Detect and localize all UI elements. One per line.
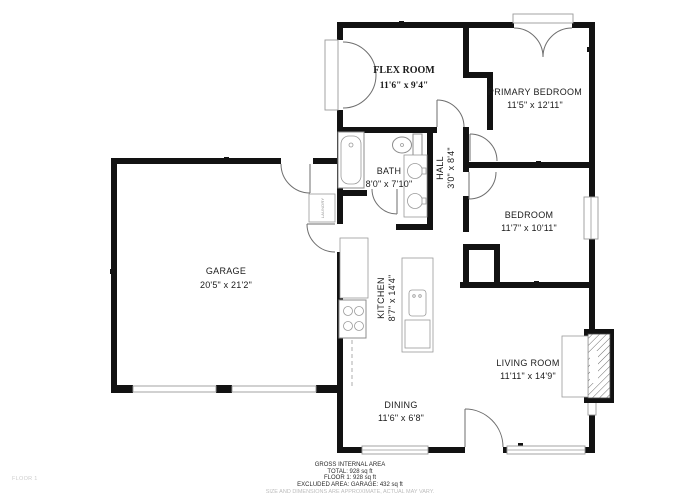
bedroom-dims: 11'7" x 10'11" [501, 223, 557, 233]
bath-dims: 8'0" x 7'10" [366, 179, 413, 189]
living-room-label: LIVING ROOM [496, 358, 559, 368]
area-summary-title: GROSS INTERNAL AREA [0, 462, 700, 469]
wall [216, 385, 232, 393]
tick [399, 21, 404, 26]
wall [463, 162, 591, 168]
door-laundry [307, 224, 335, 252]
garage-door-right [232, 386, 316, 392]
dining-dims: 11'6" x 6'8" [378, 413, 424, 423]
hearth [562, 336, 588, 397]
wall [460, 282, 591, 288]
hall-dims: 3'0" x 8'4" [446, 147, 456, 189]
door-primary-bedroom [470, 134, 497, 161]
wall [463, 22, 469, 77]
fixtures [309, 132, 433, 386]
tick [110, 269, 115, 274]
garage-door-left [133, 386, 216, 392]
tick [536, 161, 541, 166]
closet-bay-flex [325, 40, 338, 110]
living-room-dims: 11'11" x 14'9" [500, 371, 556, 381]
kitchen-label: KITCHEN [376, 277, 386, 319]
toilet [393, 134, 423, 156]
wall [337, 22, 514, 28]
area-summary: GROSS INTERNAL AREA TOTAL: 928 sq ft FLO… [0, 462, 700, 496]
wall [313, 158, 337, 164]
door-front-entry [465, 409, 503, 447]
wall [111, 385, 133, 393]
closet-bay-primary [513, 14, 573, 23]
stove [339, 300, 366, 338]
bedroom-label: BEDROOM [505, 210, 554, 220]
window-living-bottom [507, 446, 585, 454]
area-summary-disclaimer: SIZE AND DIMENSIONS ARE APPROXIMATE, ACT… [0, 489, 700, 496]
wall [463, 196, 469, 232]
room-labels: FLEX ROOM 11'6" x 9'4" PRIMARY BEDROOM 1… [200, 65, 582, 423]
floor-plan-svg: FLEX ROOM 11'6" x 9'4" PRIMARY BEDROOM 1… [0, 0, 700, 500]
door-garage-entry [281, 164, 310, 193]
dining-label: DINING [384, 400, 417, 410]
wall [494, 244, 500, 288]
kitchen-island [402, 258, 433, 352]
window-living-side [588, 402, 596, 415]
area-summary-floor1: FLOOR 1: 928 sq ft [0, 475, 700, 482]
wall [111, 158, 281, 164]
kitchen-dims: 8'7" x 14'4" [387, 275, 397, 322]
door-bath [372, 189, 397, 214]
flex-room-dims: 11'6" x 9'4" [380, 81, 429, 91]
windows [133, 14, 598, 454]
bathtub [338, 132, 364, 188]
tick [587, 47, 592, 52]
laundry-label: LAUNDRY [320, 198, 325, 219]
window-bedroom [584, 197, 598, 239]
wall [487, 72, 493, 130]
wall [337, 22, 343, 40]
wall [316, 385, 343, 393]
area-summary-total: TOTAL: 928 sq ft [0, 469, 700, 476]
primary-bedroom-label: PRIMARY BEDROOM [488, 87, 582, 97]
garage-label: GARAGE [206, 266, 246, 276]
door-flex-closet [343, 42, 376, 108]
tick [224, 157, 229, 162]
dimension-ticks [110, 21, 592, 448]
wall [111, 158, 117, 393]
window-dining [362, 446, 428, 454]
wall [427, 127, 433, 230]
door-bedroom [469, 172, 496, 199]
door-flex-room [437, 100, 464, 127]
wall [463, 244, 469, 288]
hall-label: HALL [435, 156, 445, 180]
garage-dims: 20'5" x 21'2" [200, 280, 252, 290]
area-summary-excluded: EXCLUDED AREA: GARAGE: 432 sq ft [0, 482, 700, 489]
door-primary-closet [514, 28, 572, 57]
primary-bedroom-dims: 11'5" x 12'11" [507, 100, 563, 110]
floor-tag: FLOOR 1 [12, 476, 38, 482]
tick [534, 281, 539, 286]
wall [396, 224, 433, 230]
floor-plan-page: FLEX ROOM 11'6" x 9'4" PRIMARY BEDROOM 1… [0, 0, 700, 500]
bath-label: BATH [377, 166, 402, 176]
flex-room-label: FLEX ROOM [373, 65, 435, 76]
fireplace [562, 329, 614, 403]
tick [373, 128, 378, 133]
wall [337, 190, 367, 196]
